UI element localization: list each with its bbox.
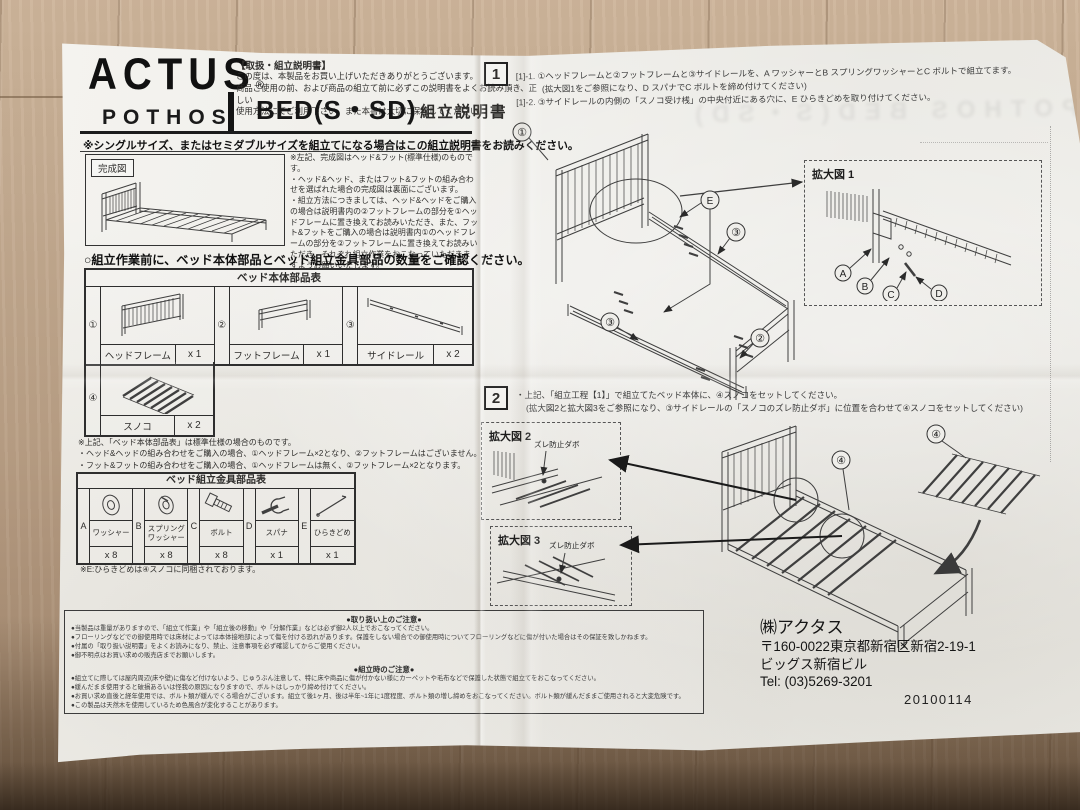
part-name: フットフレーム: [230, 345, 305, 364]
step2-text: ・上記、「組立工程【1】」で組立てたベッド本体に、④スノコをセットしてください。…: [516, 389, 1061, 415]
svg-text:④: ④: [931, 429, 941, 441]
table-cell-headframe: ① ヘッドフレーム x 1: [86, 287, 215, 364]
hardware-title: ベッド組立金具部品表: [78, 474, 354, 489]
zoom1-box: 拡大図 1 A B: [804, 160, 1042, 306]
header-rule-thin: [80, 151, 472, 152]
callout-headframe: ①: [513, 123, 548, 160]
svg-text:C: C: [887, 290, 894, 301]
hardware-footnote: ※E:ひらきどめは④スノコに同梱されております。: [80, 564, 260, 575]
hardware-name: スプリング ワッシャー: [145, 520, 187, 547]
company-address: 〒160-0022東京都新宿区新宿2-19-1: [760, 638, 976, 655]
svg-text:D: D: [935, 289, 942, 300]
washer-icon: [91, 491, 131, 519]
callout-bolt: C: [883, 272, 906, 301]
pre-check-heading: ○組立作業前に、ベッド本体部品とベッド組立金具部品の数量をご確認ください。: [84, 250, 530, 268]
hardware-qty: x 8: [145, 547, 187, 563]
hardware-cell-washer: A ワッシャー x 8: [78, 489, 133, 563]
hardware-name: ボルト: [200, 520, 242, 547]
spanner-icon: [257, 491, 297, 519]
svg-text:B: B: [862, 282, 869, 293]
body-parts-title: ベッド本体部品表: [86, 270, 472, 287]
zoom-pointer-arrows: [598, 434, 858, 574]
hardware-cell-hirakidome: E ひらきどめ x 1: [299, 489, 354, 563]
callout-washer: A: [835, 249, 871, 281]
zoom3-label: 拡大図 3: [498, 532, 540, 548]
finished-view-label: 完成図: [91, 159, 134, 177]
hardware-qty: x 1: [256, 547, 298, 563]
zoom2-diagram: [486, 447, 616, 517]
hardware-key: D: [244, 489, 256, 563]
finished-view-box: 完成図: [85, 154, 285, 246]
company-building: ビッグス新宿ビル: [760, 656, 976, 673]
step1-diagram: ① E ③ ③ ②: [486, 116, 810, 400]
hardware-table: ベッド組立金具部品表 A ワッシャー x 8 B: [76, 472, 356, 565]
company-tel: Tel: (03)5269-3201: [760, 673, 976, 690]
table-cell-footframe: ② フットフレーム x 1: [215, 287, 344, 364]
photo-scene: ACTUS® POTHOS 【取扱・組立説明書】 この度は、本製品をお買い上げい…: [0, 0, 1080, 810]
part-qty: x 2: [434, 345, 472, 364]
hardware-cell-bolt: C ボルト x 8: [188, 489, 243, 563]
part-qty: x 2: [175, 416, 213, 435]
sunoko-icon: [111, 364, 203, 414]
footframe-icon: [241, 290, 331, 342]
handling-cautions-title: ●取り扱い上のご注意●: [71, 614, 697, 625]
finished-bed-drawing: [90, 180, 280, 242]
body-parts-footnote: ※上記、「ベッド本体部品表」は標準仕様の場合のものです。 ・ヘッド&ヘッドの組み…: [78, 437, 482, 471]
hardware-name: ワッシャー: [90, 520, 132, 547]
hardware-key: C: [188, 489, 200, 563]
hardware-qty: x 1: [311, 547, 354, 563]
hirakidome-icon: [312, 491, 352, 519]
handling-cautions: ●当製品は重量がありますので、「組立て作業」や「組立後の移動」や「分解作業」など…: [71, 625, 697, 661]
product-title: BED(S・SD): [256, 90, 417, 127]
hardware-cell-spring-washer: B スプリング ワッシャー x 8: [133, 489, 188, 563]
bolt-icon: [201, 491, 241, 519]
company-name: ㈱アクタス: [760, 618, 976, 638]
doc-tag: 【取扱・組立説明書】: [236, 58, 331, 72]
step1-number-box: 1: [484, 62, 508, 86]
floor-plank-seam: [0, 96, 72, 98]
instruction-sheet: ACTUS® POTHOS 【取扱・組立説明書】 この度は、本製品をお買い上げい…: [58, 34, 1080, 765]
hardware-name: ひらきどめ: [311, 520, 354, 547]
spring-washer-icon: [146, 491, 186, 519]
part-name: スノコ: [101, 416, 175, 435]
svg-text:E: E: [707, 196, 714, 207]
callout-sunoko-panel: ④: [927, 425, 966, 458]
zoom2-label: 拡大図 2: [489, 428, 531, 444]
svg-text:③: ③: [731, 227, 741, 239]
part-number: ②: [215, 287, 230, 364]
svg-text:A: A: [840, 269, 847, 280]
header-rule: [80, 131, 472, 134]
assembly-cautions: ●組立てに際しては屋内周辺(床や壁)に傷など付けないよう、じゅうぶん注意して、特…: [71, 675, 697, 711]
part-number: ③: [343, 287, 358, 364]
hardware-name: スパナ: [256, 520, 298, 547]
hardware-cell-spanner: D スパナ x 1: [244, 489, 299, 563]
part-number: ①: [86, 287, 101, 364]
step2-line2: (拡大図2と拡大図3をご参照になり、③サイドレールの「スノコのズレ防止ダボ」に位…: [526, 402, 1061, 415]
step1-text: [1]-1. ①ヘッドフレームと②フットフレームと③サイドレールを、A ワッシャ…: [516, 64, 1046, 110]
callout-spring-washer: B: [857, 258, 889, 294]
svg-text:①: ①: [517, 127, 527, 139]
part-name: サイドレール: [358, 345, 434, 364]
document-date: 20100114: [904, 692, 973, 707]
svg-text:②: ②: [755, 333, 765, 345]
hardware-key: A: [78, 489, 90, 563]
callout-spanner: D: [916, 277, 947, 301]
zoom1-label: 拡大図 1: [812, 166, 854, 182]
part-number: ④: [86, 362, 101, 435]
table-cell-siderail: ③ サイドレール x 2: [343, 287, 472, 364]
zoom1-diagram: A B C D: [813, 183, 1035, 301]
headframe-icon: [112, 290, 202, 342]
series-name: POTHOS: [102, 106, 233, 130]
table-cell-sunoko: ④ スノコ x 2: [84, 362, 215, 437]
svg-text:③: ③: [605, 317, 615, 329]
part-qty: x 1: [304, 345, 342, 364]
bleed-through-line-h: [920, 142, 1048, 143]
header-divider: [228, 92, 234, 132]
hardware-qty: x 8: [200, 547, 242, 563]
step2-line1: ・上記、「組立工程【1】」で組立てたベッド本体に、④スノコをセットしてください。: [516, 389, 1061, 402]
body-parts-table: ベッド本体部品表 ① ヘッドフレーム x 1: [84, 268, 474, 366]
hardware-qty: x 8: [90, 547, 132, 563]
callout-siderail-far: ③: [718, 223, 745, 254]
hardware-key: B: [133, 489, 145, 563]
assembly-cautions-title: ●組立時のご注意●: [71, 664, 697, 675]
company-block: ㈱アクタス 〒160-0022東京都新宿区新宿2-19-1 ビッグス新宿ビル T…: [760, 618, 976, 691]
hardware-key: E: [299, 489, 311, 563]
step2-number-box: 2: [484, 386, 508, 410]
cautions-box: ●取り扱い上のご注意● ●当製品は重量がありますので、「組立て作業」や「組立後の…: [64, 610, 704, 714]
siderail-icon: [360, 290, 470, 342]
